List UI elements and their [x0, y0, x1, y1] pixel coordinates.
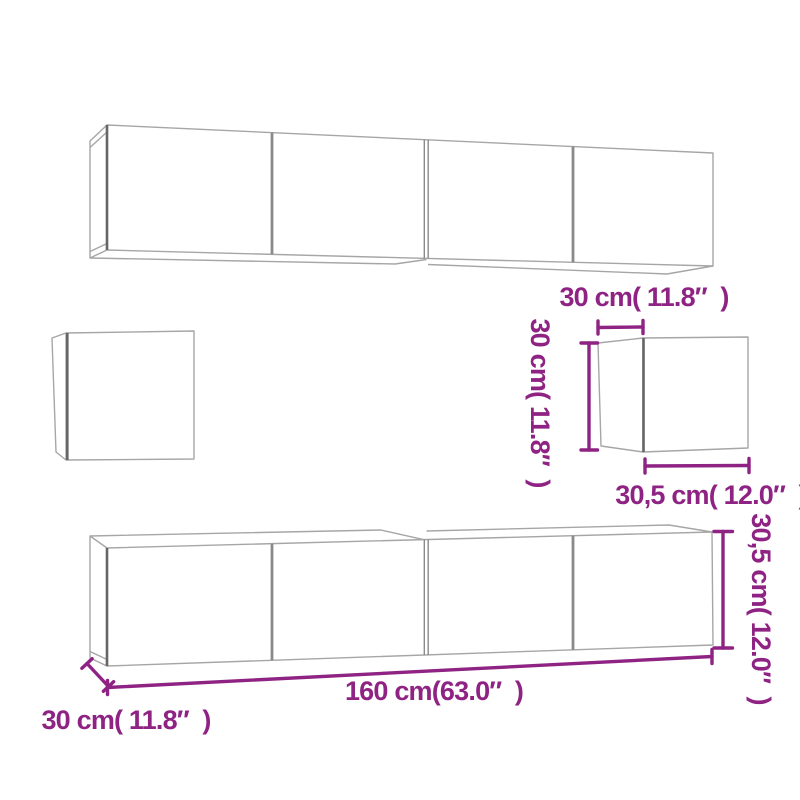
top-edge-left-unit [90, 530, 424, 540]
tv-stand-height-label: 30,5 cm( 12.0″ ) [746, 513, 776, 704]
cabinet-front-face [107, 532, 713, 666]
cabinet-left-face [52, 333, 66, 460]
product-dimension-diagram: 30 cm( 11.8″ ) 30 cm( 11.8″ ) 30,5 cm( 1… [0, 0, 800, 800]
cabinet-front-face [643, 337, 748, 452]
cabinet-left-face [90, 536, 107, 666]
small-cabinet-width-label: 30,5 cm( 12.0″ ) [615, 480, 800, 510]
cabinet-left-face [598, 338, 643, 452]
cabinet-front-face [66, 331, 194, 460]
top-edge-right-unit [427, 525, 713, 532]
wall-cabinet-long-top [90, 125, 713, 274]
tv-stand-width-label: 160 cm(63.0″ ) [345, 676, 523, 706]
depth-dimension-line [598, 327, 643, 328]
wall-cabinet-small-right [598, 337, 748, 452]
small-cabinet-depth-label: 30 cm( 11.8″ ) [559, 282, 728, 312]
tv-stand-long-bottom [90, 525, 713, 666]
underside-edge-left-unit [90, 258, 427, 264]
underside-edge-right-unit [428, 265, 713, 275]
depth-dimension-line [87, 664, 109, 687]
small-cabinet-height-label: 30 cm( 11.8″ ) [525, 318, 555, 487]
cabinet-front-face [107, 125, 713, 266]
width-dimension-line [645, 466, 749, 467]
tv-stand-depth-label: 30 cm( 11.8″ ) [41, 705, 210, 735]
wall-cabinet-small-left [52, 331, 194, 460]
dimension-diagram-canvas: 30 cm( 11.8″ ) 30 cm( 11.8″ ) 30,5 cm( 1… [0, 0, 800, 800]
